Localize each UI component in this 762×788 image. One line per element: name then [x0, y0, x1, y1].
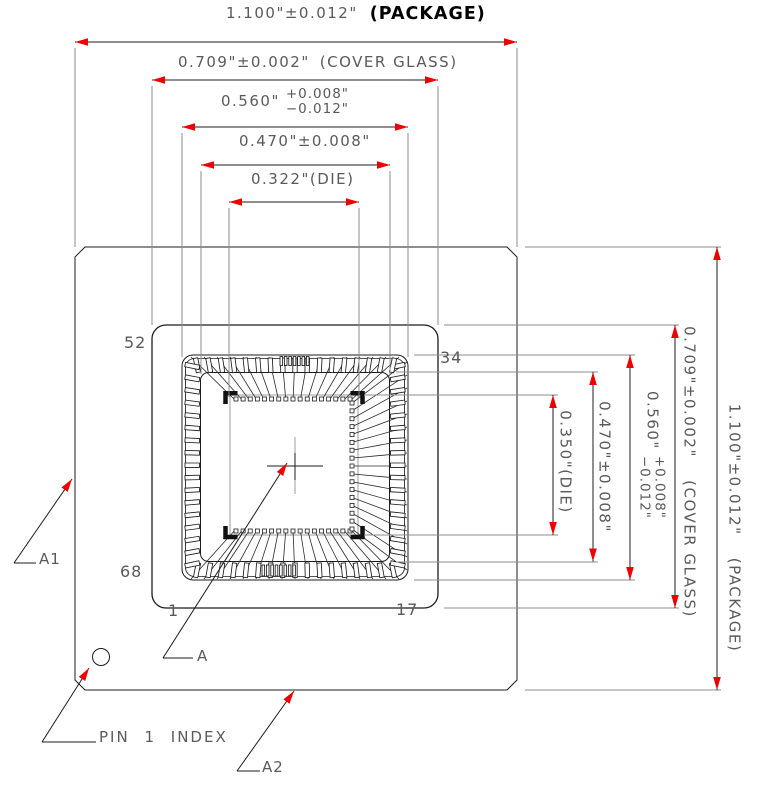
tol-plus: +0.008" [286, 87, 349, 102]
package-drawing: 1.100"±0.012" (PACKAGE) 0.709"±0.002" (C… [0, 0, 762, 788]
dim-value: 1.100"±0.012" [726, 404, 744, 536]
dim-seal-top: 0.560" +0.008" −0.012" [221, 87, 349, 116]
pin-label-17: 17 [396, 601, 418, 619]
dim-value: 0.709"±0.002" [681, 326, 699, 458]
dim-die-top: 0.322"(DIE) [251, 171, 355, 188]
dim-cavity-top: 0.470"±0.008" [239, 133, 371, 150]
pin-label-68: 68 [120, 563, 142, 581]
dim-tolerance-stack: +0.008" −0.012" [286, 87, 349, 116]
callout-a2: A2 [262, 759, 284, 776]
pin-label-1: 1 [168, 602, 179, 620]
tol-plus: +0.008" [652, 456, 667, 519]
dim-note-package: (PACKAGE) [370, 4, 486, 24]
dim-note-package: (PACKAGE) [726, 558, 744, 652]
pin1-index-circle [93, 649, 110, 666]
dim-coverglass-right: 0.709"±0.002" (COVER GLASS) [680, 326, 697, 618]
dim-value: 1.100"±0.012" [226, 5, 358, 22]
dim-coverglass-top: 0.709"±0.002" (COVER GLASS) [178, 54, 458, 71]
dim-value: 0.560" [221, 93, 280, 110]
dim-value: 0.709"±0.002" [178, 54, 310, 71]
callout-pin1-index: PIN 1 INDEX [99, 729, 228, 746]
tol-minus: −0.012" [286, 102, 349, 117]
callout-a1: A1 [39, 551, 61, 568]
dim-package-top: 1.100"±0.012" (PACKAGE) [226, 4, 486, 24]
dim-note-coverglass: (COVER GLASS) [681, 480, 699, 618]
dim-tolerance-stack: +0.008" −0.012" [637, 456, 666, 519]
tol-minus: −0.012" [637, 456, 652, 519]
pin-label-52: 52 [124, 334, 146, 352]
dim-value: 0.560" [643, 391, 660, 450]
dim-seal-right: 0.560" +0.008" −0.012" [637, 391, 666, 519]
die-outline [230, 395, 358, 535]
dim-note-coverglass: (COVER GLASS) [320, 54, 458, 71]
dim-die-right: 0.350"(DIE) [556, 410, 573, 514]
pin-label-34: 34 [440, 349, 462, 367]
dim-cavity-right: 0.470"±0.008" [595, 401, 612, 533]
dim-package-right: 1.100"±0.012" (PACKAGE) [725, 404, 742, 652]
callout-a: A [197, 648, 208, 665]
